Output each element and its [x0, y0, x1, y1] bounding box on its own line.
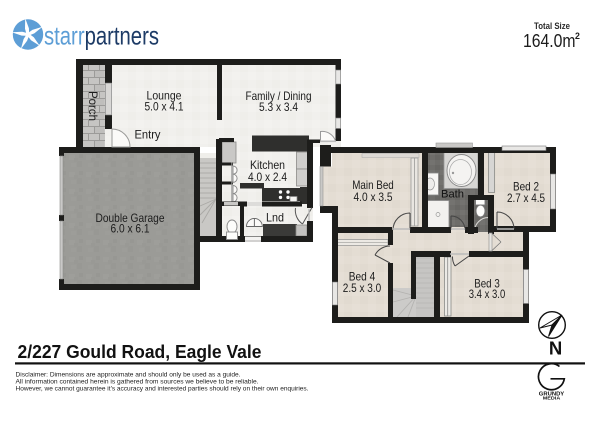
svg-text:2.7 x 4.5: 2.7 x 4.5	[507, 192, 545, 205]
svg-text:5.3 x 3.4: 5.3 x 3.4	[259, 101, 298, 114]
svg-text:2: 2	[575, 31, 580, 41]
svg-text:4.0 x 2.4: 4.0 x 2.4	[248, 171, 287, 184]
svg-text:164.0m: 164.0m	[523, 30, 576, 51]
svg-text:Disclaimer: Dimensions are app: Disclaimer: Dimensions are approximate a…	[16, 372, 241, 379]
svg-text:Lnd: Lnd	[266, 212, 284, 225]
svg-text:starrpartners: starrpartners	[44, 21, 159, 51]
svg-text:3.4 x 3.0: 3.4 x 3.0	[469, 288, 506, 301]
svg-text:2/227 Gould Road, Eagle Vale: 2/227 Gould Road, Eagle Vale	[18, 341, 262, 362]
svg-text:2.5 x 3.0: 2.5 x 3.0	[343, 282, 382, 295]
svg-text:N: N	[549, 338, 562, 359]
svg-text:Porch: Porch	[86, 91, 99, 121]
svg-text:MEDIA: MEDIA	[543, 396, 562, 401]
svg-text:Entry: Entry	[135, 129, 161, 142]
svg-text:Bath: Bath	[441, 189, 464, 201]
svg-text:5.0 x 4.1: 5.0 x 4.1	[145, 101, 184, 114]
svg-text:4.0 x 3.5: 4.0 x 3.5	[354, 191, 393, 204]
svg-text:However, we cannot guarantee i: However, we cannot guarantee it's accura…	[16, 386, 309, 393]
svg-text:All information contained here: All information contained herein is gath…	[16, 379, 259, 386]
svg-text:6.0 x 6.1: 6.0 x 6.1	[111, 223, 150, 236]
